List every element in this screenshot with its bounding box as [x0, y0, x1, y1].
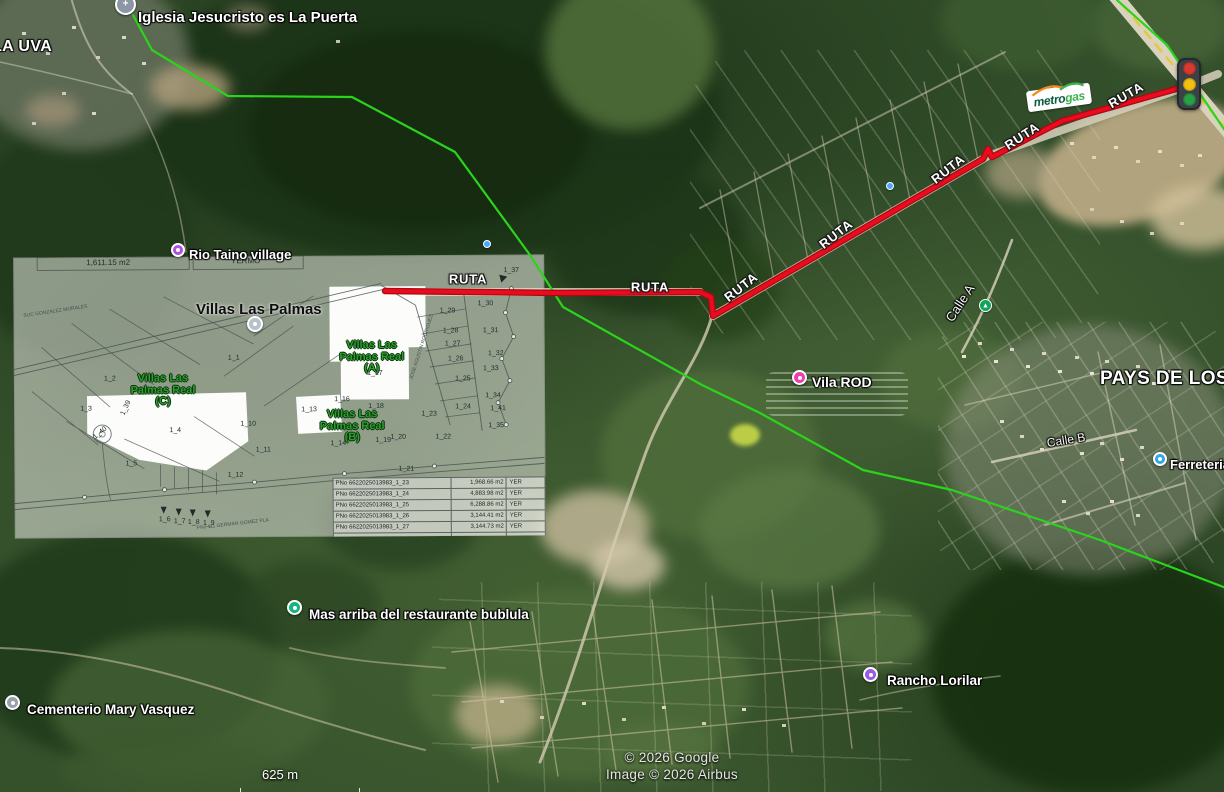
map-canvas[interactable]: 1,611.15 m2 YERMO 1_11_21_31_41_51_61_71…	[0, 0, 1224, 792]
village-icon	[176, 248, 180, 252]
place-label: Villas Las Palmas	[196, 301, 322, 318]
transit-stop-icon[interactable]: ▲	[979, 299, 992, 312]
place-label: LA UVA	[0, 38, 52, 56]
neighborhood-icon	[253, 322, 257, 326]
traffic-light-red	[1183, 62, 1196, 75]
place-pin[interactable]	[287, 600, 302, 615]
place-label: Ferreteria	[1170, 457, 1224, 472]
transit-stop-icon: ▲	[982, 302, 989, 309]
attribution-airbus: Image © 2026 Airbus	[120, 767, 1224, 784]
church-icon: +	[123, 0, 129, 9]
route-line	[385, 87, 1183, 316]
place-pin[interactable]	[792, 370, 807, 385]
place-label: Cementerio Mary Vasquez	[27, 702, 194, 717]
lodging-icon	[798, 376, 802, 380]
place-pin[interactable]	[247, 316, 263, 332]
place-label: Iglesia Jesucristo es La Puerta	[138, 9, 357, 26]
place-label: Rio Taino village	[189, 247, 291, 262]
route-layer	[0, 0, 1224, 792]
hardware-store-icon	[1158, 457, 1162, 461]
boundary-line	[1117, 0, 1224, 132]
place-label: Rancho Lorilar	[887, 673, 982, 688]
place-pin[interactable]	[5, 695, 20, 710]
cemetery-icon	[11, 701, 15, 705]
place-pin[interactable]	[863, 667, 878, 682]
place-label: Vila ROD	[812, 374, 872, 390]
traffic-light-yellow	[1183, 78, 1196, 91]
scale-bar	[240, 788, 360, 792]
ranch-icon	[869, 673, 873, 677]
attribution: © 2026 Google Image © 2026 Airbus	[120, 750, 1224, 784]
route-label: RUTA	[449, 272, 487, 287]
restaurant-icon	[293, 606, 297, 610]
attribution-google: © 2026 Google	[120, 750, 1224, 767]
traffic-light-green	[1183, 93, 1196, 106]
place-pin[interactable]	[1153, 452, 1167, 466]
place-pin[interactable]	[171, 243, 185, 257]
place-label: PAYS DE LOS CID	[1100, 368, 1224, 390]
poi-dot-icon[interactable]	[886, 182, 894, 190]
poi-dot-icon[interactable]	[483, 240, 491, 248]
traffic-light-icon[interactable]	[1177, 58, 1201, 110]
place-label: Mas arriba del restaurante bublula	[309, 607, 529, 622]
route-label: RUTA	[631, 280, 669, 295]
